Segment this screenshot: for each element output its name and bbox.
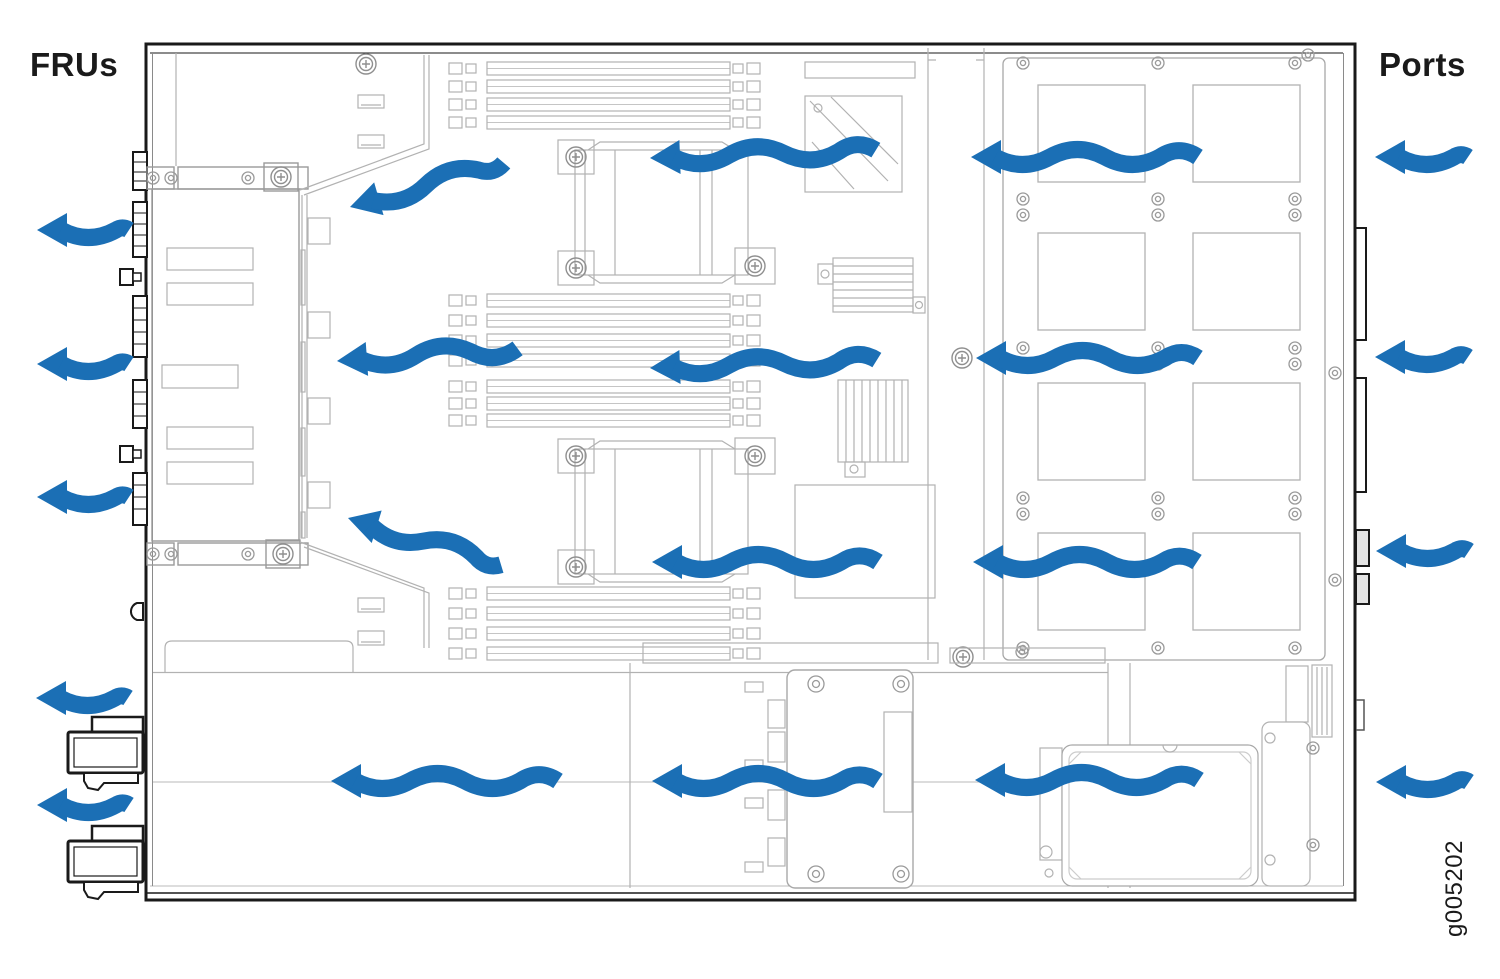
psu-bay: [165, 641, 1105, 888]
fan-module: [805, 62, 915, 192]
d-knob-icon: [131, 603, 143, 620]
airflow-arrow: [973, 545, 1197, 579]
airflow-arrow: [1375, 340, 1468, 374]
airflow-arrow: [331, 764, 558, 798]
airflow-arrow: [36, 681, 128, 715]
airflow-arrow: [37, 347, 129, 381]
card-slots: [162, 248, 253, 484]
dimm-bank-3: [449, 587, 760, 660]
airflow-arrow: [37, 788, 129, 822]
airflow-arrow: [37, 213, 129, 247]
finned-heatsink-1: [818, 258, 925, 313]
psu-handle-1: [68, 717, 143, 790]
board-section-outline: [795, 485, 935, 598]
right-wall-ports: [1356, 228, 1369, 730]
airflow-arrow: [971, 140, 1198, 174]
airflow-arrow: [343, 502, 506, 581]
airflow-arrow: [336, 331, 519, 378]
airflow-arrow: [1376, 534, 1469, 568]
airflow-arrows: [36, 133, 1469, 822]
airflow-arrow: [976, 341, 1198, 375]
airflow-arrow: [649, 343, 877, 385]
chassis-diagram: [0, 0, 1500, 979]
riser-connector-strip: [301, 195, 330, 538]
airflow-arrow: [649, 133, 876, 175]
airflow-arrow: [1375, 140, 1468, 174]
airflow-arrow: [1376, 765, 1469, 799]
airflow-arrow: [37, 480, 129, 514]
screw-icon: [356, 54, 376, 74]
airflow-arrow: [345, 147, 508, 224]
finned-heatsink-2: [838, 380, 908, 477]
psu-handle-2: [68, 826, 143, 899]
dimm-bank-1: [449, 62, 760, 129]
airflow-figure: FRUs Ports g005202: [0, 0, 1500, 979]
fru-card: [147, 163, 330, 568]
airflow-arrow: [652, 545, 878, 579]
